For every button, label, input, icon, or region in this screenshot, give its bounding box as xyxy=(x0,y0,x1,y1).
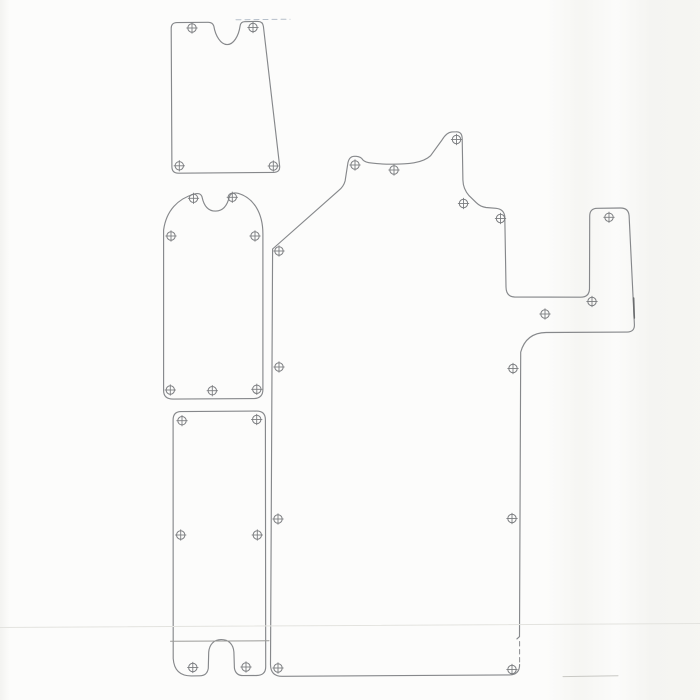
drill-hole-marker xyxy=(165,230,176,241)
drill-hole-marker xyxy=(207,385,218,396)
drill-hole-marker xyxy=(165,384,176,395)
crease-line-bottom-panel xyxy=(171,641,270,642)
drill-hole-marker xyxy=(240,661,251,672)
drill-hole-marker xyxy=(603,212,614,223)
drill-hole-marker xyxy=(175,529,186,540)
drill-hole-marker xyxy=(458,198,469,209)
drill-hole-marker xyxy=(388,164,399,175)
drill-hole-marker xyxy=(249,230,260,241)
drill-hole-marker xyxy=(506,513,517,524)
drill-hole-marker xyxy=(252,529,263,540)
scanned-template-sheet xyxy=(0,0,700,700)
panel-middle-left-outline xyxy=(164,193,263,399)
drill-hole-marker xyxy=(349,159,360,170)
drill-hole-marker xyxy=(247,22,258,33)
drill-hole-marker xyxy=(586,296,597,307)
drill-hole-marker xyxy=(174,160,185,171)
drill-hole-marker xyxy=(507,363,518,374)
drill-hole-marker xyxy=(272,662,283,673)
scan-streak-horizontal xyxy=(0,624,700,628)
drill-hole-marker xyxy=(188,193,199,204)
drill-hole-marker xyxy=(272,513,283,524)
drill-hole-marker xyxy=(268,160,279,171)
drill-hole-marker xyxy=(187,662,198,673)
ink-thick-segment-right-arm xyxy=(634,298,635,318)
drill-hole-marker xyxy=(186,22,197,33)
drill-hole-marker xyxy=(539,308,550,319)
drill-hole-marker xyxy=(273,361,284,372)
drill-hole-marker xyxy=(251,414,262,425)
dashed-edge-extension-top xyxy=(236,19,290,20)
panel-main-outline xyxy=(271,132,635,677)
panel-bottom-left-outline xyxy=(173,411,266,676)
drill-hole-marker xyxy=(176,415,187,426)
technical-drawing-canvas xyxy=(0,0,700,700)
print-smear-bottom-right xyxy=(563,676,618,677)
drill-hole-marker xyxy=(451,134,462,145)
drill-hole-marker xyxy=(251,384,262,395)
panel-top-left-outline xyxy=(171,21,279,173)
